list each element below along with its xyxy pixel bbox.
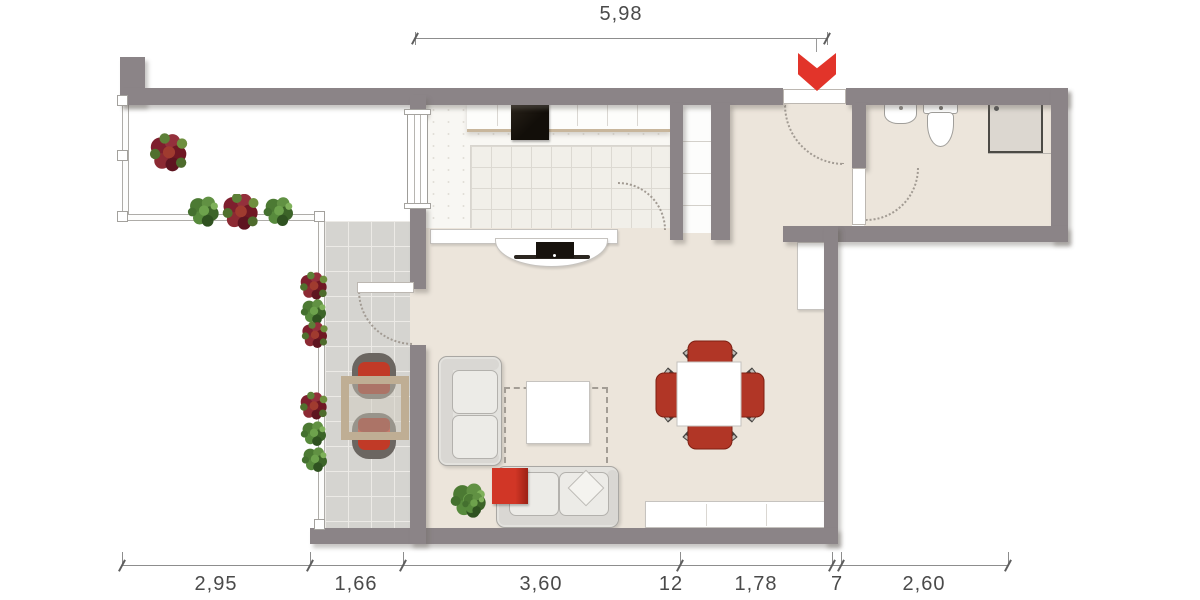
railing-post <box>117 211 128 222</box>
railing-plant-icon <box>295 268 335 356</box>
sofa-vertical <box>438 356 502 466</box>
shower-edge-line <box>988 153 1051 154</box>
kitchen-counter <box>467 103 670 132</box>
railing-post <box>314 519 325 530</box>
cabinet-divider <box>637 103 638 126</box>
coffee-table <box>526 381 590 444</box>
bathroom-bottom-wall <box>838 226 1068 242</box>
window-pane-line <box>420 114 421 205</box>
shower-drain-icon <box>994 106 999 111</box>
sink-faucet-icon <box>899 106 903 110</box>
railing-post <box>117 95 128 106</box>
railing-post <box>117 150 128 161</box>
kitchen-hallway-wall-left <box>670 103 683 240</box>
dimension-label: 1,66 <box>311 573 401 596</box>
dimension-label: 1,78 <box>711 573 801 596</box>
dimension-label: 3,60 <box>496 573 586 596</box>
outer-wall-top <box>120 88 783 105</box>
closet-shelf-line <box>683 141 711 142</box>
outer-wall-bottom <box>310 528 838 544</box>
dining-table <box>677 362 741 426</box>
entrance-marker-line <box>816 39 817 52</box>
hallway-closet <box>683 105 711 233</box>
entrance-arrow-icon <box>798 53 836 91</box>
sideboard-divider <box>706 504 707 526</box>
terrace-table <box>345 380 405 436</box>
sofa-cushion <box>452 370 498 414</box>
bathroom-door <box>852 168 866 225</box>
window-sill <box>404 203 431 209</box>
dimension-label: 2,60 <box>879 573 969 596</box>
living-room-plant-icon <box>444 478 494 526</box>
bathroom-sink <box>884 103 917 124</box>
tv-led <box>553 254 556 257</box>
living-room-right-wall <box>824 226 838 544</box>
dimension-label: 12 <box>631 573 711 596</box>
cooktop <box>511 100 549 140</box>
shower <box>988 100 1043 153</box>
entrance-door <box>783 89 846 104</box>
planter-box-icon <box>182 194 302 234</box>
tall-cabinet <box>797 242 825 310</box>
dimension-label: 2,95 <box>171 573 261 596</box>
closet-shelf-line <box>683 205 711 206</box>
potted-plant-icon <box>143 128 195 180</box>
window-pane-line <box>414 114 415 205</box>
outer-wall-top-bathroom <box>846 88 1068 105</box>
sideboard-divider <box>766 504 767 526</box>
sofa-cushion <box>452 415 498 459</box>
dining-set <box>645 330 775 460</box>
dimension-line-bottom <box>122 565 1008 566</box>
terrace-lounge-set <box>330 340 420 470</box>
dimension-line-top <box>415 38 827 39</box>
cabinet-divider <box>497 103 498 126</box>
dimension-label-top: 5,98 <box>576 3 666 26</box>
hallway-bathroom-wall <box>852 103 866 168</box>
cabinet-divider <box>607 103 608 126</box>
railing-post <box>314 211 325 222</box>
left-wall-lower <box>410 345 426 544</box>
window-sill <box>404 109 431 115</box>
closet-shelf-line <box>683 173 711 174</box>
left-wall-mid <box>410 206 426 289</box>
terrace-door <box>357 282 414 293</box>
outer-wall-right <box>1051 88 1068 242</box>
tv <box>536 242 574 258</box>
cabinet-divider <box>577 103 578 126</box>
sofa-armrest <box>441 359 499 370</box>
kitchen-window <box>407 113 428 206</box>
media-sideboard <box>645 501 827 528</box>
railing-plant-icon <box>295 388 335 480</box>
red-side-table <box>492 468 528 504</box>
toilet-button <box>939 106 943 110</box>
floor-plan: 5,98 2,95 1,66 3,60 12 1,78 7 2,60 <box>0 0 1200 600</box>
dimension-label: 7 <box>817 573 857 596</box>
kitchen-hallway-wall-right <box>711 103 730 240</box>
